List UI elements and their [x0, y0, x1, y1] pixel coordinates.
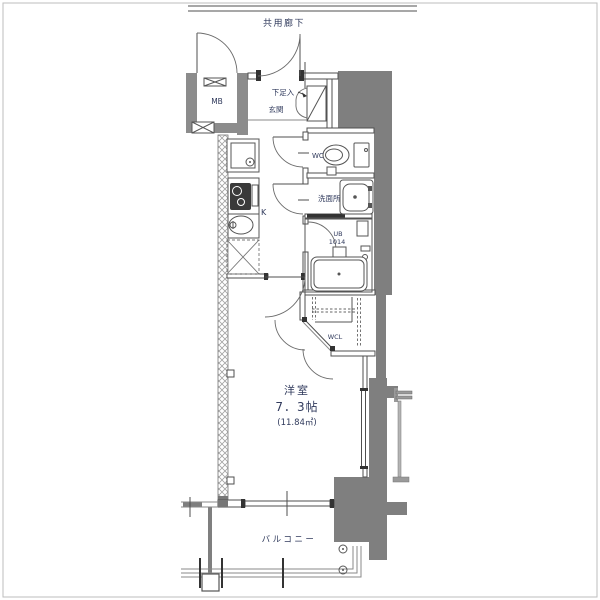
washroom: 洗面所	[273, 180, 373, 214]
unit-bath-size-label: 1014	[329, 238, 346, 246]
unit-bath-label: UB	[333, 230, 342, 238]
floor-plan-page: 共用廊下 MB	[0, 0, 600, 600]
floor-plan-drawing: 共用廊下 MB	[0, 0, 600, 600]
corridor-label: 共用廊下	[263, 17, 305, 29]
meter-box-room: MB	[192, 33, 237, 133]
walk-in-closet-label: WCL	[328, 333, 343, 341]
meter-box-label: MB	[211, 97, 223, 106]
side-partition	[393, 388, 412, 482]
main-room-size-label: 7．3帖	[275, 399, 318, 414]
shoe-cabinet-label: 下足入	[272, 88, 295, 97]
main-room-type-label: 洋室	[284, 383, 310, 397]
main-room-area-label: (11.84㎡)	[277, 418, 316, 428]
balcony-label: バルコニー	[262, 535, 317, 545]
unit-bath: UB 1014	[305, 218, 372, 292]
toilet-room: WC	[273, 137, 369, 175]
walk-in-closet: WCL	[275, 297, 361, 379]
entrance-label: 玄関	[269, 104, 284, 114]
entrance-area: 下足入 玄関	[248, 34, 338, 132]
kitchen-area: K	[227, 139, 267, 274]
washroom-label: 洗面所	[318, 193, 341, 203]
shoe-cabinet-arrowhead-icon	[302, 93, 307, 98]
balcony-drain-box	[202, 574, 219, 591]
party-wall-hatch	[218, 135, 228, 507]
corridor: 共用廊下	[188, 6, 417, 29]
kitchen-label: K	[261, 208, 267, 217]
toilet-label: WC	[312, 152, 324, 160]
